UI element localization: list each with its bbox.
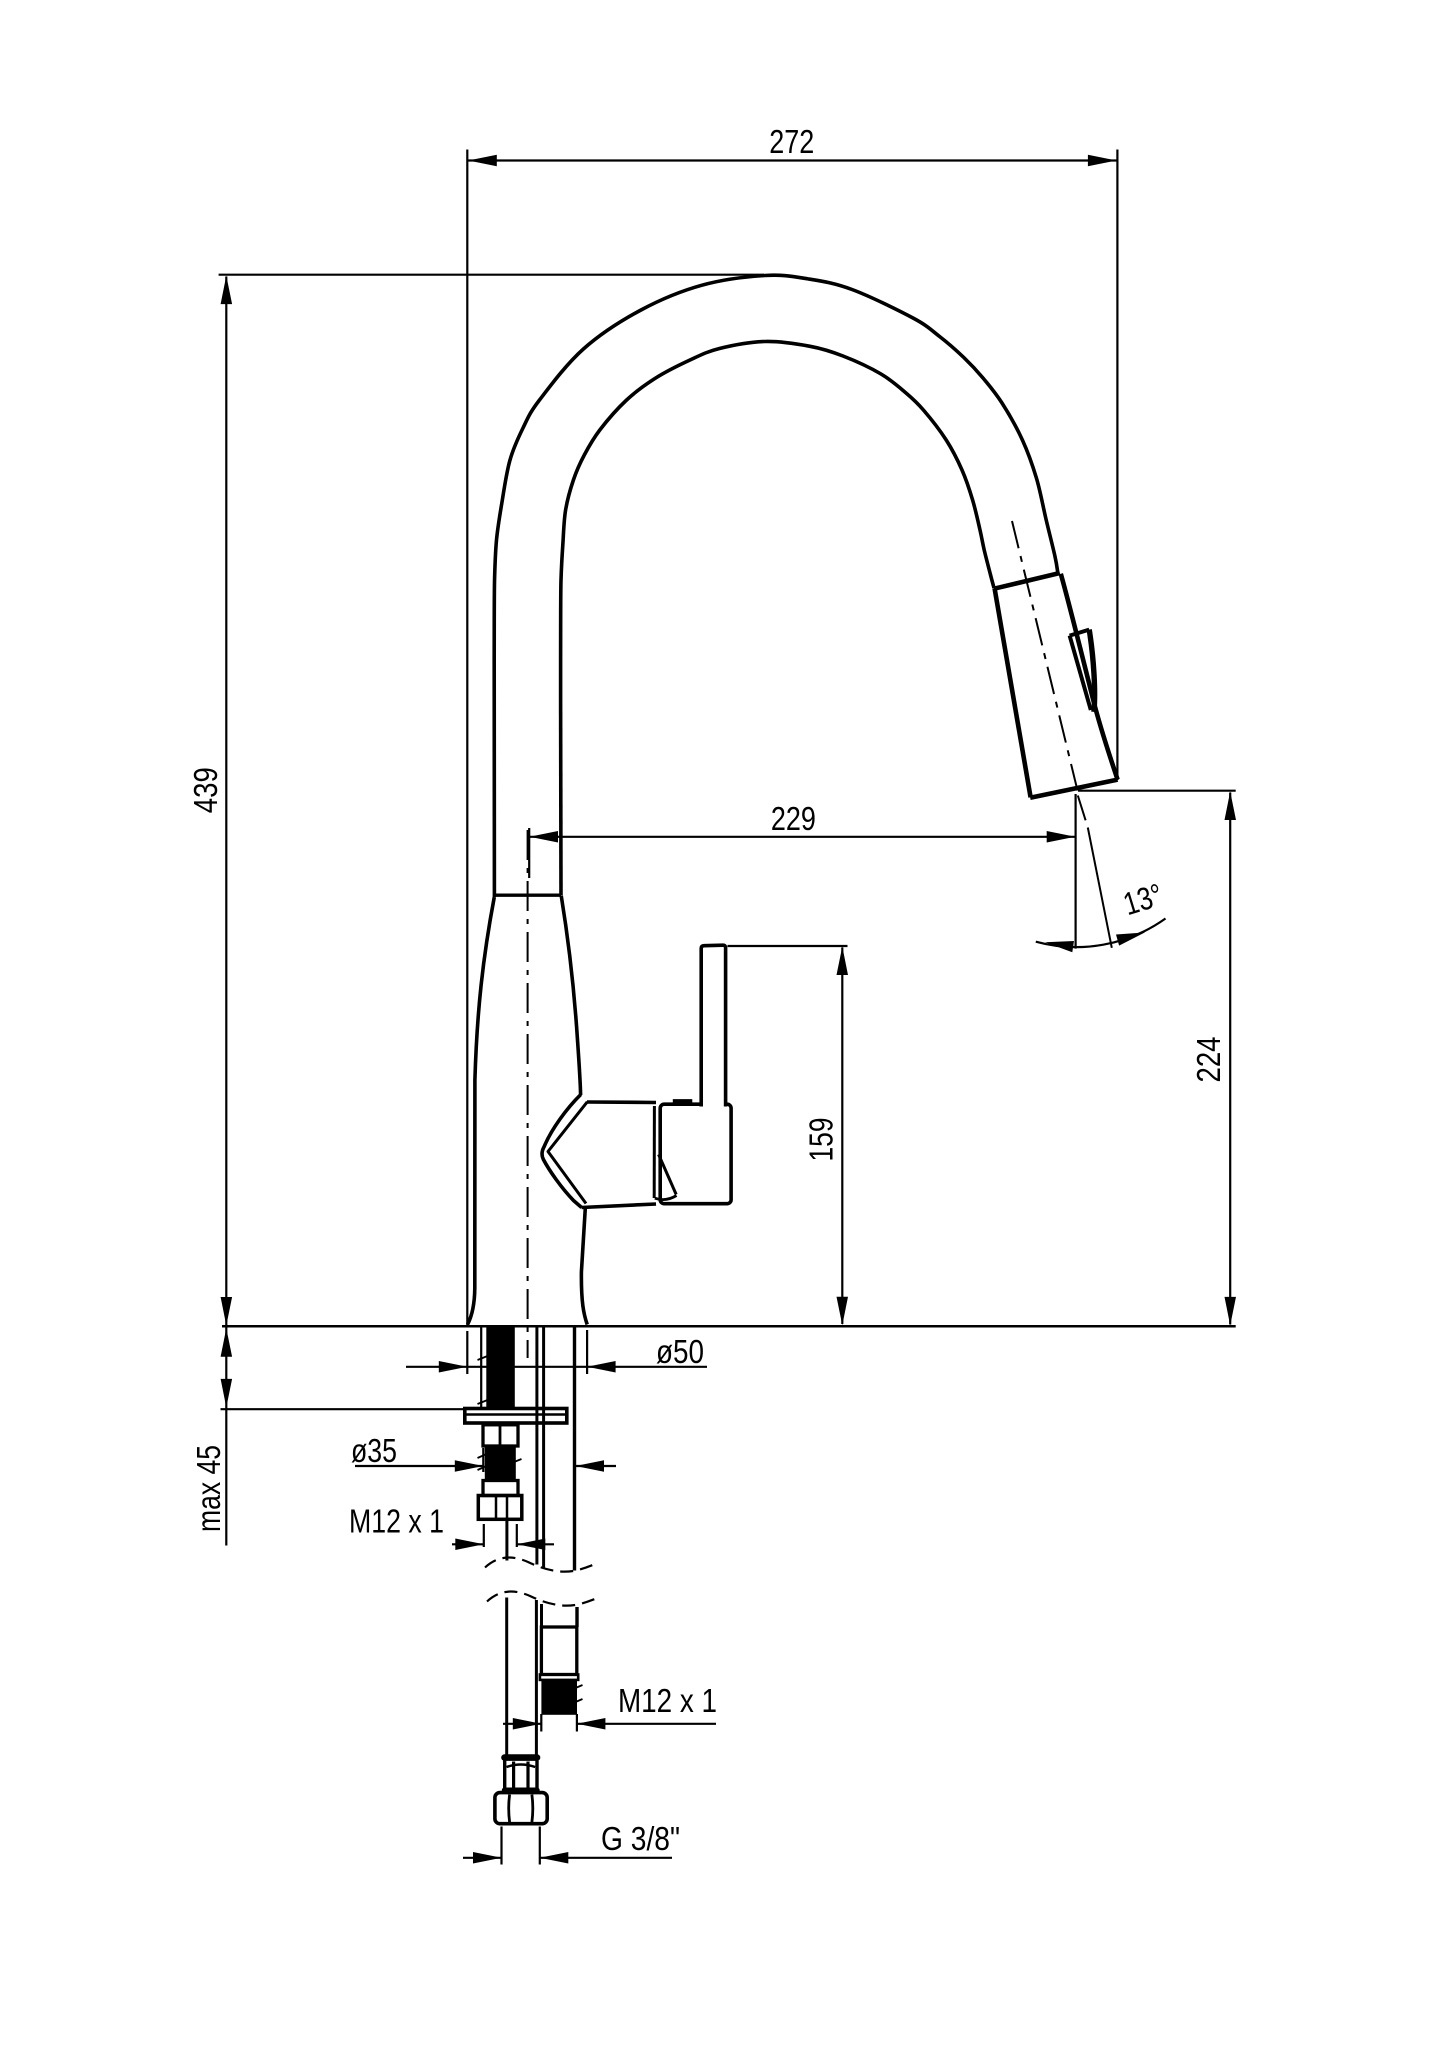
svg-text:ø50: ø50	[656, 1333, 704, 1370]
svg-text:ø35: ø35	[351, 1432, 397, 1469]
svg-text:272: 272	[769, 123, 814, 160]
svg-text:224: 224	[1190, 1037, 1227, 1083]
svg-text:G 3/8": G 3/8"	[601, 1820, 680, 1857]
svg-text:229: 229	[771, 800, 816, 837]
svg-text:M12 x 1: M12 x 1	[618, 1682, 717, 1719]
svg-text:439: 439	[187, 767, 224, 813]
svg-text:159: 159	[802, 1118, 839, 1162]
svg-text:max 45: max 45	[190, 1445, 227, 1532]
svg-text:M12 x 1: M12 x 1	[349, 1503, 444, 1540]
